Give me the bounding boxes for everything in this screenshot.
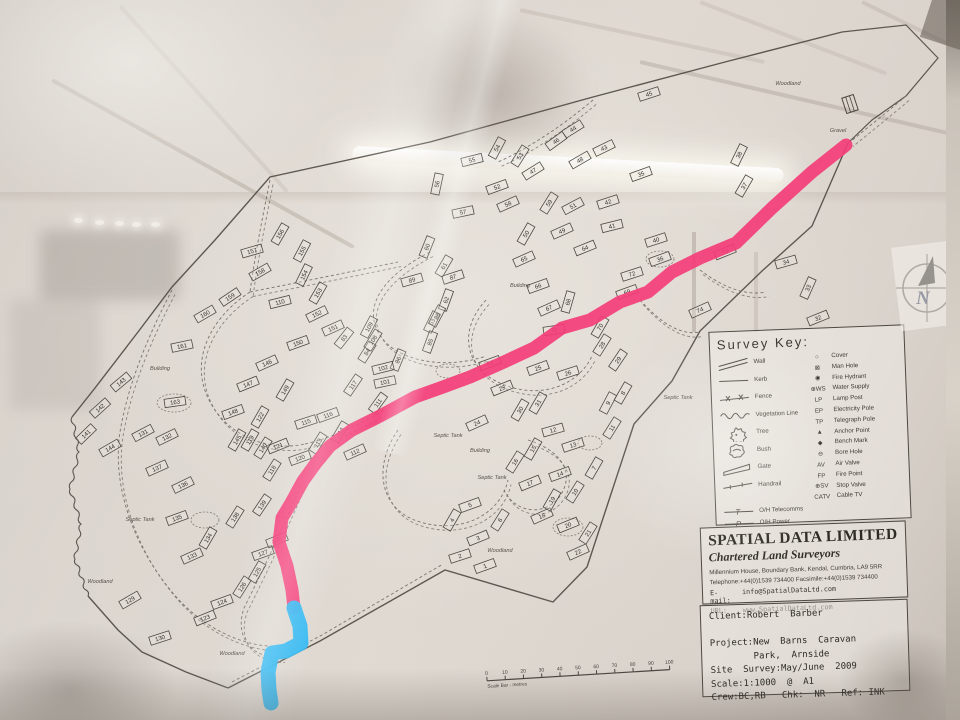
key-item-label: Fire Point xyxy=(836,471,863,479)
plot: 85 xyxy=(422,331,437,354)
plot: 7 xyxy=(585,457,603,479)
plot: 20 xyxy=(557,517,580,533)
survey-key-panel: Survey Key: WallKerbFenceVegetation Line… xyxy=(708,324,911,525)
plot: 149 xyxy=(276,379,294,401)
key-item-label: Fire Hydrant xyxy=(832,373,866,381)
key-item-label: Handrail xyxy=(758,481,781,488)
plot: 8 xyxy=(614,382,632,404)
plot: 21 xyxy=(579,522,597,544)
plot: 9 xyxy=(599,392,616,414)
plot: 29 xyxy=(609,349,628,371)
plot: 127 xyxy=(252,545,275,560)
plot: 158 xyxy=(249,263,271,281)
map-label: Building xyxy=(470,448,491,454)
plot: 58 xyxy=(497,196,520,212)
road-dashed xyxy=(700,270,766,293)
scale-bar-tick-label: 30 xyxy=(538,667,544,673)
key-item-symbol: ⊕SV xyxy=(810,483,833,491)
scale-bar-caption: Scale Bar - metres xyxy=(487,681,528,689)
key-item-label: Air Valve xyxy=(835,460,860,468)
plot: 12 xyxy=(542,423,565,437)
scale-bar-tick-label: 80 xyxy=(630,662,636,668)
plot: 1 xyxy=(474,558,497,573)
plot: 89 xyxy=(401,273,424,287)
plot: 148 xyxy=(222,404,245,419)
fence-icon xyxy=(719,390,752,407)
survey-key-left-column: WallKerbFenceVegetation LineTreeBushGate… xyxy=(717,352,807,506)
plot: 48 xyxy=(569,151,591,169)
plot: 163 xyxy=(164,396,186,407)
key-item-label: Bore Hole xyxy=(835,449,863,457)
key-item-label: Fence xyxy=(755,394,772,401)
plot: 17 xyxy=(519,475,542,491)
plot: 138 xyxy=(226,506,244,528)
tree-icon xyxy=(720,425,753,442)
plot: 64 xyxy=(574,240,597,256)
scale-bar-tick-label: 40 xyxy=(557,666,563,672)
key-item-label: Vegetation Line xyxy=(755,410,798,418)
plot: 139 xyxy=(253,494,272,516)
plot: 122 xyxy=(251,406,269,428)
key-item-symbol: ○ xyxy=(805,353,828,361)
road-dashed xyxy=(253,185,273,297)
plot: 52 xyxy=(486,179,509,194)
map-label: Septic Tank xyxy=(125,517,155,523)
plot: 156 xyxy=(271,223,289,245)
plot: 49 xyxy=(551,223,574,239)
plot: 15 xyxy=(524,438,542,460)
plot: 37 xyxy=(735,175,753,197)
plot: 42 xyxy=(597,195,620,209)
person-head-reflection xyxy=(392,8,592,178)
plot: 101 xyxy=(374,376,396,389)
plot: 152 xyxy=(306,306,329,323)
plot: 136 xyxy=(172,477,195,494)
plot: 45 xyxy=(638,87,661,101)
plot: 159 xyxy=(219,288,241,307)
key-item-symbol: ▲ xyxy=(808,429,831,437)
plot: 160 xyxy=(194,305,216,323)
plot: 14 xyxy=(549,466,572,481)
plot: 43 xyxy=(593,140,616,157)
map-label: Building xyxy=(150,366,171,372)
plot: 13 xyxy=(562,438,585,452)
key-item-symbol: ◆ xyxy=(809,439,832,447)
plot: 36 xyxy=(649,251,672,266)
plot: 132 xyxy=(156,429,179,446)
plot: 2 xyxy=(449,549,472,563)
plot: 25 xyxy=(527,360,550,375)
email-label: E-mail: xyxy=(710,588,737,605)
plot: 16 xyxy=(506,451,524,473)
plot: 4 xyxy=(443,509,461,531)
scale-bar-tick-label: 20 xyxy=(520,668,526,674)
plot: 155 xyxy=(293,240,310,262)
plot: 5 xyxy=(459,497,482,512)
map-label: Septic Tank xyxy=(663,395,693,401)
plot: 147 xyxy=(237,376,260,392)
handrail-icon xyxy=(722,477,755,494)
key-item-symbol: ◉ xyxy=(806,375,829,383)
scale-bar-tick-label: 50 xyxy=(575,665,581,671)
gate-icon xyxy=(721,460,754,477)
plot: 130 xyxy=(149,631,172,645)
key-item-label: Cover xyxy=(831,353,848,360)
plot: 144 xyxy=(99,439,121,457)
plot: 134 xyxy=(199,527,217,549)
map-label: Woodland xyxy=(87,579,113,585)
plot: 123 xyxy=(194,610,217,626)
key-item-symbol: CATV xyxy=(811,493,834,501)
plot: 38 xyxy=(731,144,748,167)
plot: 26 xyxy=(557,366,580,380)
scale-bar-tick-label: 0 xyxy=(485,671,488,677)
key-item-label: Cable TV xyxy=(837,492,863,500)
scale-bar-tick-label: 70 xyxy=(612,663,618,669)
plot: 146 xyxy=(256,355,279,371)
key-item-label: Tree xyxy=(756,429,769,436)
plot: 157 xyxy=(241,244,264,258)
tree-canopy-outline xyxy=(191,512,219,528)
plot: 59 xyxy=(540,192,558,214)
plot: 115 xyxy=(295,415,318,429)
plot: 126 xyxy=(233,576,251,598)
plot: 32 xyxy=(807,310,830,326)
key-item-label: Bush xyxy=(757,446,771,453)
plot: 143 xyxy=(110,372,131,392)
key-item-label: Electricity Pole xyxy=(833,406,874,414)
plot: 57 xyxy=(452,206,474,219)
key-item-symbol: EP xyxy=(807,407,830,415)
plot: 35 xyxy=(630,166,653,181)
plot: 56 xyxy=(431,173,444,195)
scale-bar-tick-label: 100 xyxy=(665,659,674,666)
plot: 142 xyxy=(89,398,110,418)
plot: 68 xyxy=(561,291,575,314)
plot: 153 xyxy=(309,282,327,304)
scale-bar-tick-label: 10 xyxy=(502,670,508,676)
map-label: Woodland xyxy=(219,651,245,657)
key-item-label: Stop Valve xyxy=(836,482,866,490)
plot: 10 xyxy=(566,481,584,503)
key-item-label: Wall xyxy=(753,359,765,366)
plot: 131 xyxy=(132,424,154,441)
plot: 117 xyxy=(344,374,363,396)
road-dashed xyxy=(850,96,906,142)
plot: 154 xyxy=(296,264,313,287)
key-item-symbol: FP xyxy=(810,472,833,480)
road-dashed xyxy=(118,290,268,646)
entrance-building-icon xyxy=(842,95,858,114)
plot: 60 xyxy=(419,236,435,259)
plot: 33 xyxy=(800,277,816,300)
road-dashed xyxy=(253,267,401,297)
plot: 11 xyxy=(603,417,621,439)
key-item-symbol: ⊠ xyxy=(806,364,829,372)
plot: 74 xyxy=(689,302,712,318)
plot: 124 xyxy=(211,594,234,609)
plot: 67 xyxy=(538,300,561,316)
key-item-symbol: ⊖ xyxy=(809,450,832,458)
frame-edge-right xyxy=(946,0,960,720)
plot: 66 xyxy=(527,278,550,293)
plot: 30 xyxy=(511,399,529,421)
plot: 112 xyxy=(344,444,367,460)
map-label: Woodland xyxy=(487,548,513,554)
plot: 6 xyxy=(491,509,509,531)
plot: 110 xyxy=(269,295,291,308)
vegetation-icon xyxy=(719,407,752,424)
plot-number: 101 xyxy=(380,379,392,387)
bush-icon xyxy=(721,442,754,459)
wall-icon xyxy=(717,355,750,372)
plot: 3 xyxy=(467,530,490,546)
key-item-handrail: Handrail xyxy=(722,475,807,496)
road-dashed xyxy=(121,295,271,651)
kerb-icon xyxy=(718,373,751,390)
plot: 50 xyxy=(517,223,535,245)
site-boundary xyxy=(842,25,938,143)
key-item-symbol: LP xyxy=(807,396,830,404)
plot: 141 xyxy=(76,424,97,445)
key-item-label: Kerb xyxy=(754,377,767,384)
plot: 151 xyxy=(322,320,345,336)
woodland-boundary-wavy xyxy=(69,417,88,596)
plot: 28 xyxy=(593,334,611,356)
highlighted-route-blue xyxy=(268,608,301,703)
plot: 102 xyxy=(372,361,394,374)
plot-number: 161 xyxy=(177,343,189,351)
project-info-block: Client:Robert Barber Project:New Barns C… xyxy=(700,599,911,697)
map-label: Gravel xyxy=(830,128,847,134)
plot: 129 xyxy=(119,591,141,609)
key-item-symbol: TP xyxy=(808,418,831,426)
map-label: Building xyxy=(510,283,531,289)
scale-bar-tick-label: 90 xyxy=(648,661,654,667)
plot: 31 xyxy=(529,392,547,414)
road-dashed xyxy=(703,275,769,298)
road-dashed xyxy=(853,101,909,147)
plot: 24 xyxy=(466,415,489,431)
plot: 137 xyxy=(146,460,169,476)
key-item-label: O/H Telecomms xyxy=(759,506,803,514)
key-item-label: Gate xyxy=(757,464,771,471)
plot: 135 xyxy=(166,510,189,525)
key-item-symbol: AV xyxy=(809,461,832,469)
plot: 72 xyxy=(621,267,644,281)
plot: 161 xyxy=(171,340,193,353)
road-dashed xyxy=(386,435,511,531)
plot: 133 xyxy=(181,548,204,564)
key-item-label: Man Hole xyxy=(832,363,859,371)
key-item-symbol: ⊕WS xyxy=(807,386,830,394)
plot: 150 xyxy=(287,335,310,350)
scale-bar-tick-label: 60 xyxy=(593,664,599,670)
map-label: Woodland xyxy=(775,81,801,87)
plot: 19 xyxy=(543,489,561,511)
plot: 118 xyxy=(263,459,281,481)
key-item-label: Water Supply xyxy=(833,384,870,392)
photo-of-framed-survey-map: 4544464348475453555652585951575049424140… xyxy=(0,0,960,720)
survey-key-right-column: ○Cover⊠Man Hole◉Fire Hydrant⊕WSWater Sup… xyxy=(805,349,903,504)
plot: 65 xyxy=(513,251,536,267)
key-item-label: Telegraph Pole xyxy=(834,416,876,424)
plot: 116 xyxy=(317,407,340,422)
plot: 51 xyxy=(562,197,584,214)
map-label: Septic Tank xyxy=(477,475,507,481)
key-item-label: Lamp Post xyxy=(833,395,863,403)
plot: 40 xyxy=(645,233,668,247)
key-item-label: Bench Mark xyxy=(835,438,868,446)
map-label: Septic Tank xyxy=(433,433,463,439)
key-item-label: Anchor Point xyxy=(834,427,870,435)
plot: 22 xyxy=(567,544,590,560)
plot: 41 xyxy=(601,219,623,232)
surveyor-title-block: SPATIAL DATA LIMITED Chartered Land Surv… xyxy=(700,520,909,604)
